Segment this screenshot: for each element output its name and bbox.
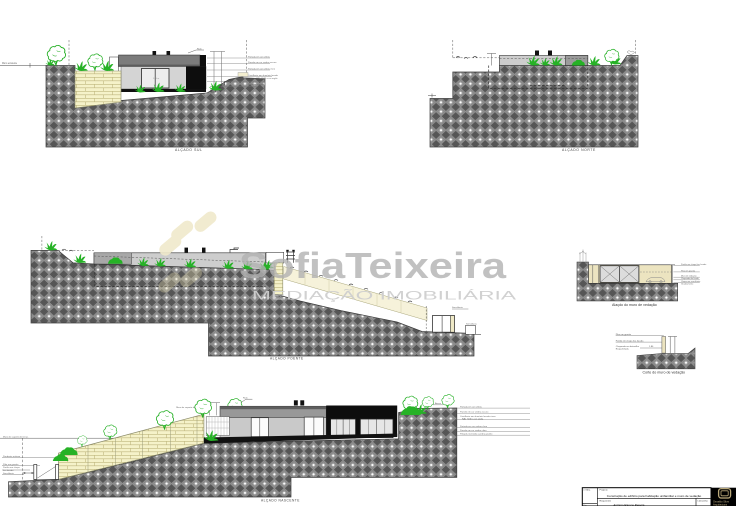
- svg-text:RAL 7046 a cor argila: RAL 7046 a cor argila: [462, 417, 484, 420]
- svg-text:MEDIAÇÃO IMOBILIÁRIA: MEDIAÇÃO IMOBILIÁRIA: [252, 287, 517, 302]
- svg-text:Arquitectura: Arquitectura: [713, 502, 728, 506]
- svg-text:Pendente mínima: Pendente mínima: [3, 455, 21, 458]
- svg-text:cinza, RAL 7046 a cor argila: cinza, RAL 7046 a cor argila: [250, 77, 278, 80]
- svg-text:Alaçdo do muro de vedação: Alaçdo do muro de vedação: [612, 303, 657, 307]
- svg-text:Rufo: Rufo: [243, 397, 248, 399]
- svg-text:Caixilharia em alumínio lacado: Caixilharia em alumínio lacado: [248, 74, 279, 77]
- svg-text:ALÇADO NORTE: ALÇADO NORTE: [562, 148, 596, 152]
- svg-text:ALÇADO POENTE: ALÇADO POENTE: [270, 357, 304, 361]
- svg-text:Muro de suporte de terras: Muro de suporte de terras: [3, 435, 29, 438]
- svg-text:Parede em cor umbra escuro: Parede em cor umbra escuro: [460, 411, 489, 414]
- svg-text:Parede em cor umbra claro: Parede em cor umbra claro: [460, 429, 487, 432]
- svg-text:Portada em cor umbra: Portada em cor umbra: [248, 55, 271, 58]
- svg-text:Rufo: Rufo: [197, 48, 202, 50]
- svg-text:Muro de suporte: Muro de suporte: [248, 83, 265, 86]
- svg-text:Pilar em granito: Pilar em granito: [3, 463, 19, 466]
- svg-text:Chapeado em betonilha: Chapeado em betonilha: [616, 345, 640, 348]
- svg-text:Pérgola revestida a pedra gran: Pérgola revestida a pedra granito: [460, 433, 493, 436]
- svg-text:Serralharia: Serralharia: [452, 306, 463, 309]
- svg-text:Esquartelada: Esquartelada: [616, 348, 630, 351]
- svg-text:Construção de edifício para ha: Construção de edifício para habitação un…: [607, 494, 702, 498]
- svg-text:Portão em chapa lisa lacada: Portão em chapa lisa lacada: [681, 263, 707, 266]
- svg-text:Corte do muro de vedação: Corte do muro de vedação: [643, 371, 686, 375]
- svg-text:n Desenho: n Desenho: [697, 501, 708, 503]
- svg-text:Portada em cor umbra: Portada em cor umbra: [460, 406, 483, 409]
- svg-text:Projecto: Projecto: [600, 489, 609, 492]
- svg-text:Requerente: Requerente: [600, 500, 612, 503]
- svg-text:Muro de vedação: Muro de vedação: [681, 275, 697, 278]
- svg-text:ALÇADO SUL: ALÇADO SUL: [175, 148, 202, 152]
- svg-text:Pilar em granito: Pilar em granito: [681, 269, 696, 272]
- svg-text:Serralharia: Serralharia: [466, 322, 477, 325]
- svg-text:Parede em cor umbra escuro: Parede em cor umbra escuro: [248, 61, 277, 64]
- svg-text:Serralharia: Serralharia: [3, 472, 14, 475]
- svg-text:Muro existente: Muro existente: [2, 62, 18, 65]
- svg-text:lisa lacada: lisa lacada: [3, 470, 14, 472]
- svg-text:n Obra: n Obra: [584, 489, 591, 492]
- svg-text:Portão em chapa: Portão em chapa: [3, 466, 20, 469]
- svg-text:Aterro: Aterro: [435, 402, 442, 405]
- svg-text:1.90 m: 1.90 m: [153, 78, 159, 80]
- svg-text:Portada em cor umbra claro: Portada em cor umbra claro: [460, 425, 488, 428]
- svg-text:ALÇADO NASCENTE: ALÇADO NASCENTE: [261, 499, 300, 503]
- svg-text:SofiaTeixeira: SofiaTeixeira: [239, 245, 507, 286]
- svg-text:Portada em cor umbra claro: Portada em cor umbra claro: [248, 67, 276, 70]
- svg-text:Gradeamento: Gradeamento: [681, 282, 694, 285]
